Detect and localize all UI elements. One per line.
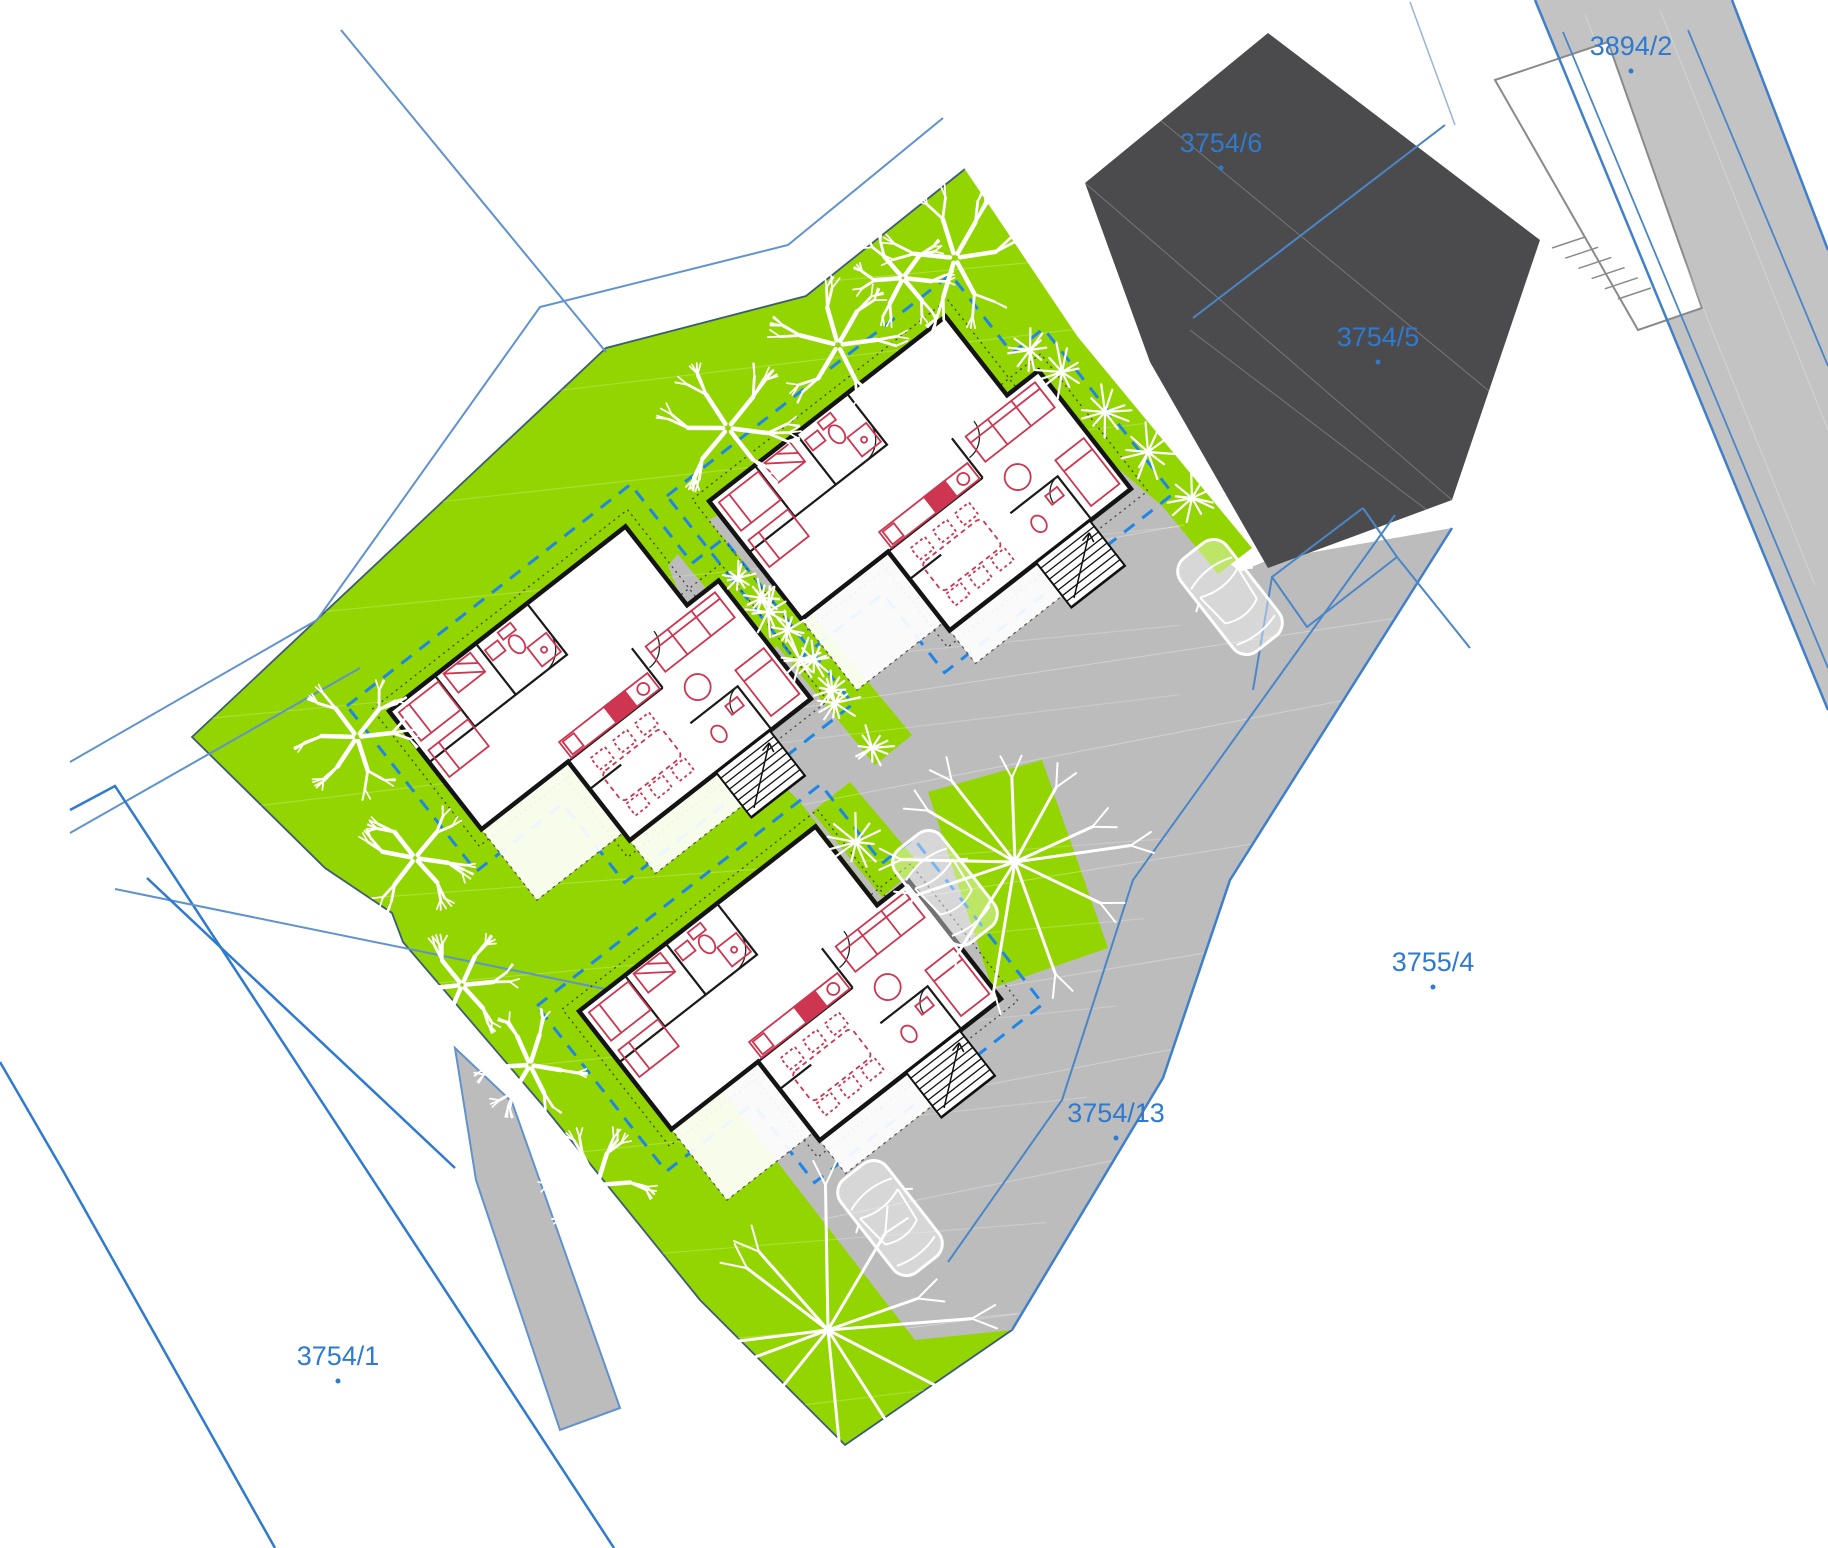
parcel-label-3754-13: 3754/13 [1067,1098,1165,1128]
parcel-label-3754-1: 3754/1 [297,1341,380,1371]
parcel-point [1431,985,1436,990]
parcel-label-3755-4: 3755/4 [1392,947,1475,977]
parcel-label-3754-6: 3754/6 [1180,128,1263,158]
site-plan: 3894/23754/63754/53755/43754/133754/1 [0,0,1828,1548]
parcel-point [1376,360,1381,365]
parcel-label-3894-2: 3894/2 [1590,31,1673,61]
parcel-point [1629,69,1634,74]
site-plan-canvas: 3894/23754/63754/53755/43754/133754/1 [0,0,1828,1548]
parcel-point [1114,1136,1119,1141]
parcel-label-3754-5: 3754/5 [1337,322,1420,352]
parcel-point [336,1379,341,1384]
parcel-point [1219,166,1224,171]
